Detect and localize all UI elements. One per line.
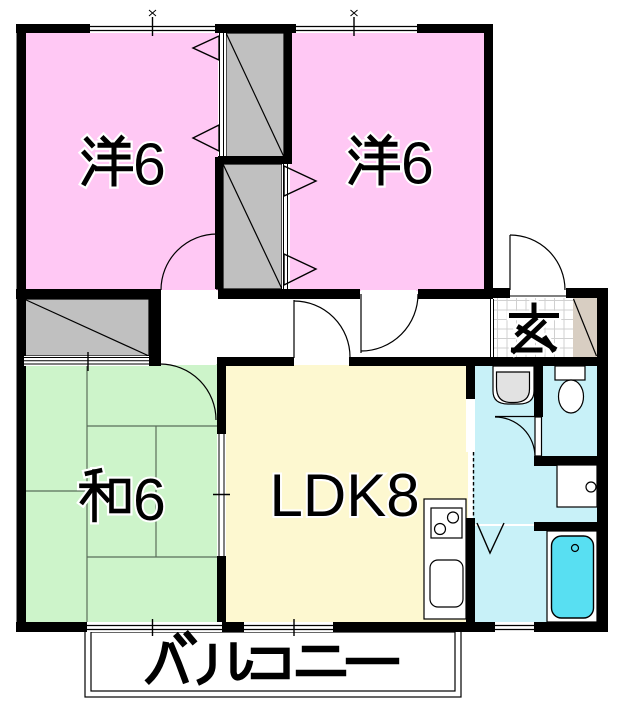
svg-text:6: 6: [133, 467, 166, 533]
svg-text:LDK8: LDK8: [270, 462, 420, 529]
svg-text:6: 6: [401, 131, 434, 197]
svg-text:6: 6: [133, 132, 166, 198]
